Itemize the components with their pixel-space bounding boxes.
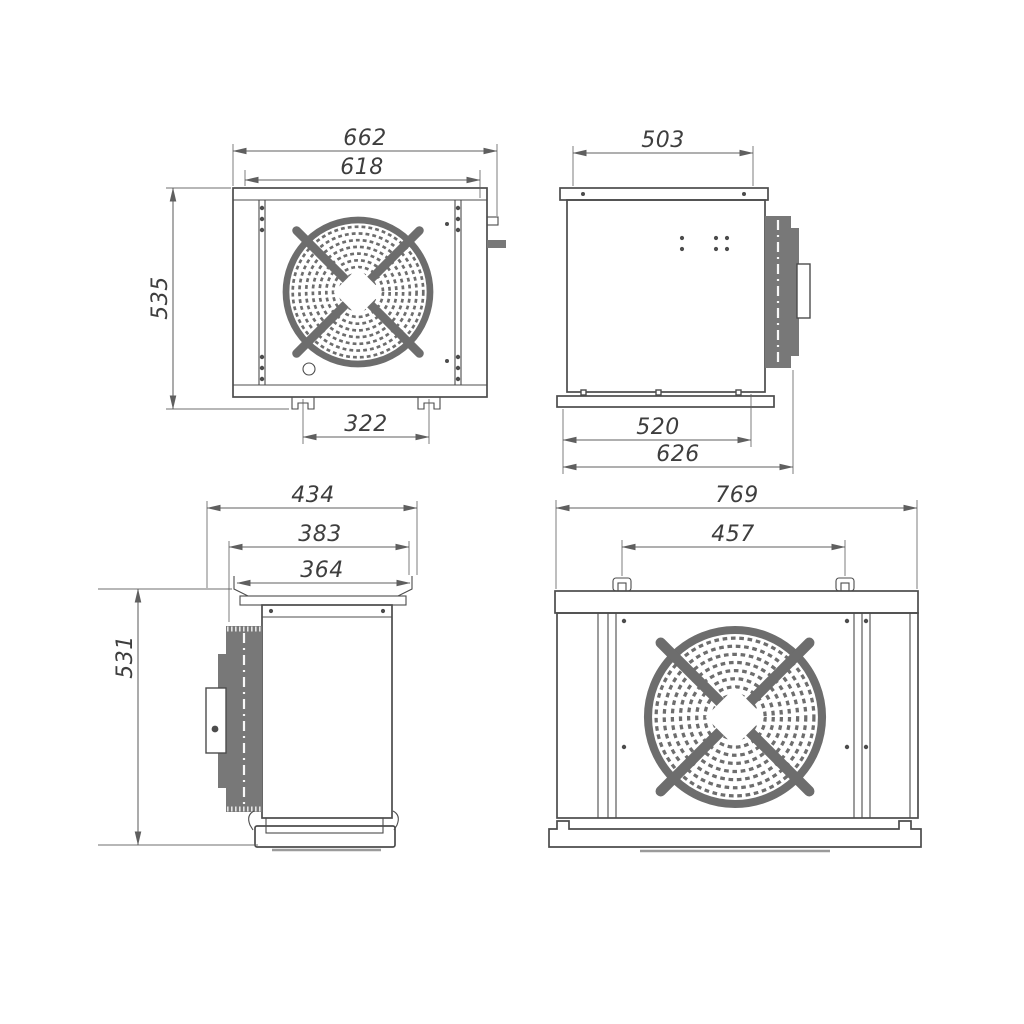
coil-bracket <box>206 688 226 753</box>
fan-grille-unit2 <box>648 630 822 804</box>
unit2-side-body <box>262 605 392 818</box>
dim-label-626: 626 <box>656 442 700 467</box>
dimension-535: 535 <box>148 188 289 409</box>
dim-label-531: 531 <box>113 635 138 679</box>
dim-label-662: 662 <box>343 126 387 151</box>
drawing-sheet: 662 618 535 322 <box>0 0 1024 1024</box>
dimension-457: 457 <box>622 522 845 576</box>
dim-label-434: 434 <box>291 483 335 508</box>
dimension-618: 618 <box>245 155 480 198</box>
drip-pan <box>249 811 399 850</box>
drain-hole <box>303 363 315 375</box>
view-unit1-front: 662 618 535 322 <box>148 126 506 444</box>
dimension-503: 503 <box>573 128 753 186</box>
dim-label-364: 364 <box>300 558 344 583</box>
dimension-322: 322 <box>303 399 429 444</box>
unit2-front-base <box>549 821 921 851</box>
fan-grille-unit1 <box>286 220 430 364</box>
dim-label-503: 503 <box>641 128 685 153</box>
lifting-hooks <box>613 578 854 591</box>
refrigerant-pipes <box>487 217 506 248</box>
dim-label-520: 520 <box>636 415 680 440</box>
dim-label-535: 535 <box>148 276 173 320</box>
unit1-side-frame <box>560 188 768 392</box>
dim-label-383: 383 <box>298 522 342 547</box>
condenser-coil-side <box>765 216 799 368</box>
view-unit2-front: 769 457 <box>549 483 921 851</box>
dim-label-457: 457 <box>711 522 755 547</box>
side-bracket <box>797 264 810 318</box>
dimension-364: 364 <box>237 558 410 583</box>
dim-label-769: 769 <box>715 483 759 508</box>
view-unit1-side: 503 520 626 <box>557 128 810 474</box>
dim-label-618: 618 <box>340 155 384 180</box>
unit1-side-screw-dots <box>680 236 729 251</box>
dim-label-322: 322 <box>344 412 388 437</box>
unit1-feet <box>292 397 440 409</box>
view-unit2-side: 434 383 364 531 <box>98 483 417 850</box>
technical-drawing: 662 618 535 322 <box>0 0 1024 1024</box>
